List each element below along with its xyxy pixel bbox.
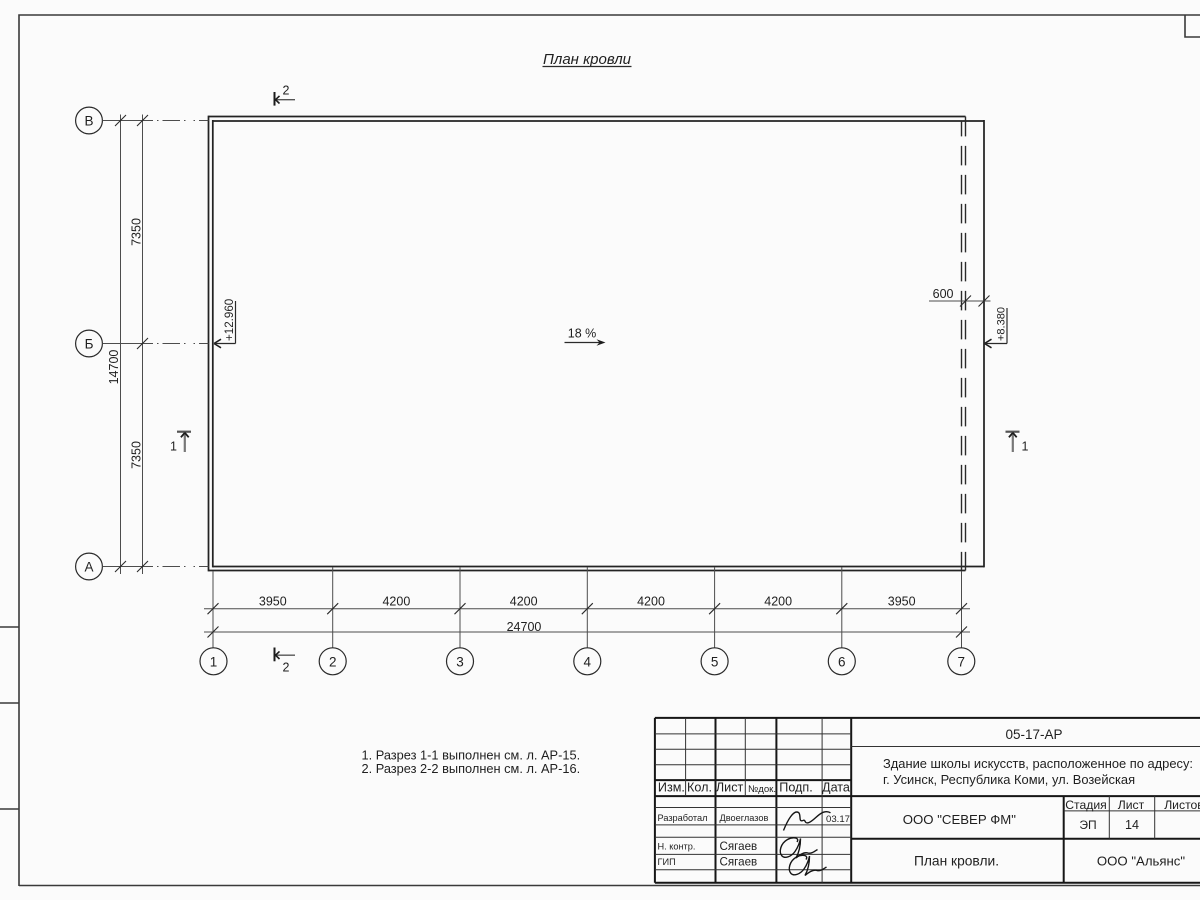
svg-text:№док.: №док. bbox=[748, 784, 776, 795]
svg-text:4200: 4200 bbox=[510, 595, 538, 609]
svg-text:7350: 7350 bbox=[130, 441, 144, 469]
svg-text:1: 1 bbox=[210, 654, 218, 669]
svg-text:03.17: 03.17 bbox=[826, 814, 850, 825]
svg-text:г. Усинск, Республика Коми, ул: г. Усинск, Республика Коми, ул. Возейска… bbox=[883, 772, 1135, 787]
svg-text:2. Разрез 2-2 выполнен см. л.: 2. Разрез 2-2 выполнен см. л. АР-16. bbox=[362, 761, 581, 776]
svg-text:600: 600 bbox=[933, 287, 954, 301]
svg-text:Б: Б bbox=[85, 337, 94, 352]
svg-text:В: В bbox=[84, 114, 93, 129]
svg-text:2: 2 bbox=[329, 654, 337, 669]
svg-text:4200: 4200 bbox=[637, 595, 665, 609]
svg-text:Здание школы искусств, располо: Здание школы искусств, расположенное по … bbox=[883, 756, 1193, 771]
svg-text:Кол.: Кол. bbox=[687, 781, 712, 795]
svg-text:Изм.: Изм. bbox=[658, 781, 685, 795]
svg-text:5: 5 bbox=[711, 654, 719, 669]
svg-text:+12.960: +12.960 bbox=[223, 299, 236, 341]
svg-text:7: 7 bbox=[958, 654, 966, 669]
svg-text:ЭП: ЭП bbox=[1079, 818, 1096, 832]
svg-text:05-17-АР: 05-17-АР bbox=[1005, 727, 1062, 742]
svg-text:Сягаев: Сягаев bbox=[720, 856, 758, 869]
svg-text:ООО "СЕВЕР ФМ": ООО "СЕВЕР ФМ" bbox=[903, 812, 1017, 827]
svg-text:Лист: Лист bbox=[716, 781, 744, 795]
svg-text:ГИП: ГИП bbox=[658, 857, 676, 867]
svg-text:3: 3 bbox=[456, 654, 464, 669]
svg-text:2: 2 bbox=[283, 661, 290, 675]
svg-text:2: 2 bbox=[283, 84, 290, 98]
svg-text:1: 1 bbox=[170, 440, 177, 454]
svg-text:14700: 14700 bbox=[107, 350, 121, 385]
svg-text:4200: 4200 bbox=[382, 595, 410, 609]
svg-text:План кровли.: План кровли. bbox=[914, 854, 999, 869]
svg-text:Стадия: Стадия bbox=[1065, 798, 1107, 812]
svg-text:7350: 7350 bbox=[130, 218, 144, 246]
svg-text:24700: 24700 bbox=[507, 620, 542, 634]
svg-text:Листов: Листов bbox=[1164, 798, 1200, 812]
svg-text:18 %: 18 % bbox=[568, 327, 597, 341]
svg-text:3950: 3950 bbox=[259, 595, 287, 609]
svg-text:6: 6 bbox=[838, 654, 846, 669]
svg-text:14: 14 bbox=[1125, 818, 1139, 832]
svg-text:Н. контр.: Н. контр. bbox=[658, 842, 696, 852]
svg-text:+8.380: +8.380 bbox=[996, 307, 1008, 341]
svg-text:1: 1 bbox=[1022, 440, 1029, 454]
svg-text:Дата: Дата bbox=[822, 781, 850, 795]
svg-text:4200: 4200 bbox=[764, 595, 792, 609]
svg-text:Лист: Лист bbox=[1118, 798, 1145, 812]
svg-text:Сягаев: Сягаев bbox=[720, 840, 758, 853]
svg-text:План кровли: План кровли bbox=[543, 51, 632, 68]
svg-text:Подп.: Подп. bbox=[779, 781, 812, 795]
svg-text:Двоеглазов: Двоеглазов bbox=[720, 813, 769, 823]
svg-text:ООО "Альянс": ООО "Альянс" bbox=[1097, 854, 1185, 869]
svg-text:А: А bbox=[84, 560, 93, 575]
svg-text:3950: 3950 bbox=[888, 595, 916, 609]
svg-text:4: 4 bbox=[584, 654, 592, 669]
svg-text:Разработал: Разработал bbox=[658, 813, 708, 823]
